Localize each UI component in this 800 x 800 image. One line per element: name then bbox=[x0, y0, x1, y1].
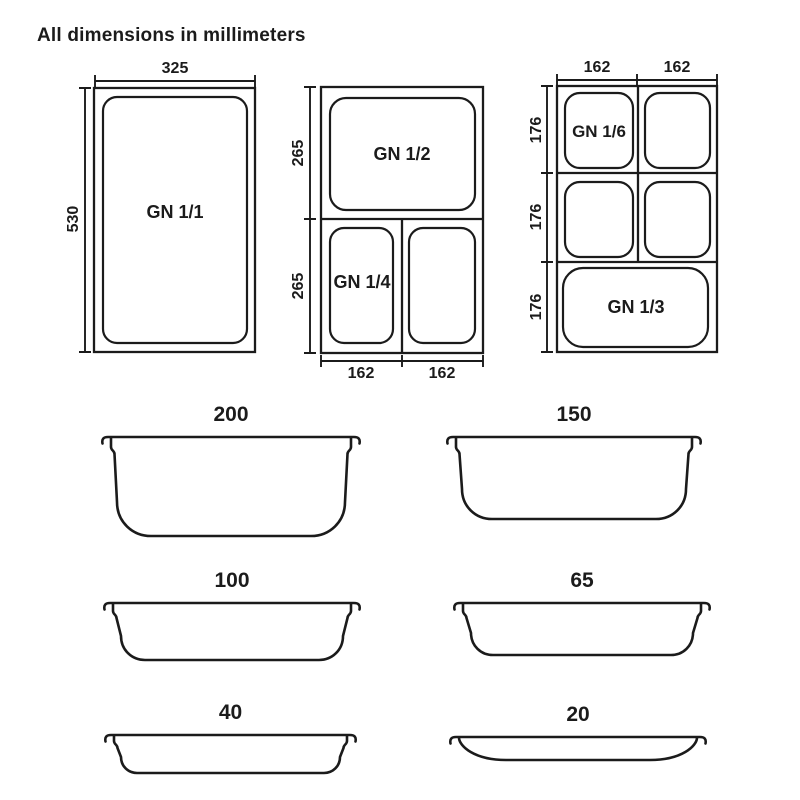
gn11-height-label: 530 bbox=[64, 179, 84, 259]
pan-profile-drawing bbox=[103, 731, 358, 778]
pan-profile-drawing bbox=[445, 433, 703, 524]
pan-profile-100: 100 bbox=[102, 569, 362, 666]
page-title: All dimensions in millimeters bbox=[37, 25, 306, 47]
pan-profile-outline bbox=[102, 437, 359, 536]
pan-profile-outline bbox=[104, 603, 359, 660]
gn16-width-left-label: 162 bbox=[567, 59, 627, 77]
gn12-name-label: GN 1/2 bbox=[352, 144, 452, 164]
gn12-plan-drawing bbox=[285, 55, 495, 395]
gn12-height-top-label: 265 bbox=[289, 113, 309, 193]
pan-depth-label-100: 100 bbox=[102, 569, 362, 593]
gn16-pan-mid-right bbox=[645, 182, 710, 257]
gn16-width-right-label: 162 bbox=[647, 59, 707, 77]
gn16-height-row3-label: 176 bbox=[527, 267, 547, 347]
gn16-plan-drawing bbox=[525, 55, 740, 365]
pan-profile-outline bbox=[454, 603, 709, 655]
gn16-pan-mid-left bbox=[565, 182, 633, 257]
pan-profile-40: 40 bbox=[103, 701, 358, 779]
pan-depth-label-20: 20 bbox=[448, 703, 708, 727]
diagram-canvas: All dimensions in millimeters 325 530 GN… bbox=[0, 0, 800, 800]
gn14-name-label: GN 1/4 bbox=[312, 272, 412, 292]
pan-profile-20: 20 bbox=[448, 703, 708, 766]
pan-profile-drawing bbox=[452, 599, 712, 660]
gn11-width-label: 325 bbox=[145, 60, 205, 78]
pan-profile-150: 150 bbox=[445, 403, 703, 525]
pan-profile-200: 200 bbox=[100, 403, 362, 542]
gn13-name-label: GN 1/3 bbox=[586, 297, 686, 317]
gn14-pan-right bbox=[409, 228, 475, 343]
pan-depth-label-40: 40 bbox=[103, 701, 358, 725]
pan-depth-label-150: 150 bbox=[445, 403, 703, 427]
gn16-pan-top-right bbox=[645, 93, 710, 168]
gn16-height-row2-label: 176 bbox=[527, 177, 547, 257]
gn12-height-bottom-label: 265 bbox=[289, 246, 309, 326]
pan-profile-drawing bbox=[102, 599, 362, 665]
gn16-name-label: GN 1/6 bbox=[549, 122, 649, 142]
pan-profile-drawing bbox=[448, 733, 708, 765]
pan-depth-label-200: 200 bbox=[100, 403, 362, 427]
pan-profile-65: 65 bbox=[452, 569, 712, 661]
pan-profile-drawing bbox=[100, 433, 362, 541]
pan-profile-outline bbox=[447, 437, 700, 519]
gn12-width-right-label: 162 bbox=[412, 365, 472, 383]
gn12-width-left-label: 162 bbox=[331, 365, 391, 383]
pan-profile-outline bbox=[450, 737, 705, 760]
gn16-height-row1-label: 176 bbox=[527, 90, 547, 170]
pan-profile-outline bbox=[105, 735, 355, 773]
gn11-name-label: GN 1/1 bbox=[125, 202, 225, 222]
pan-depth-label-65: 65 bbox=[452, 569, 712, 593]
